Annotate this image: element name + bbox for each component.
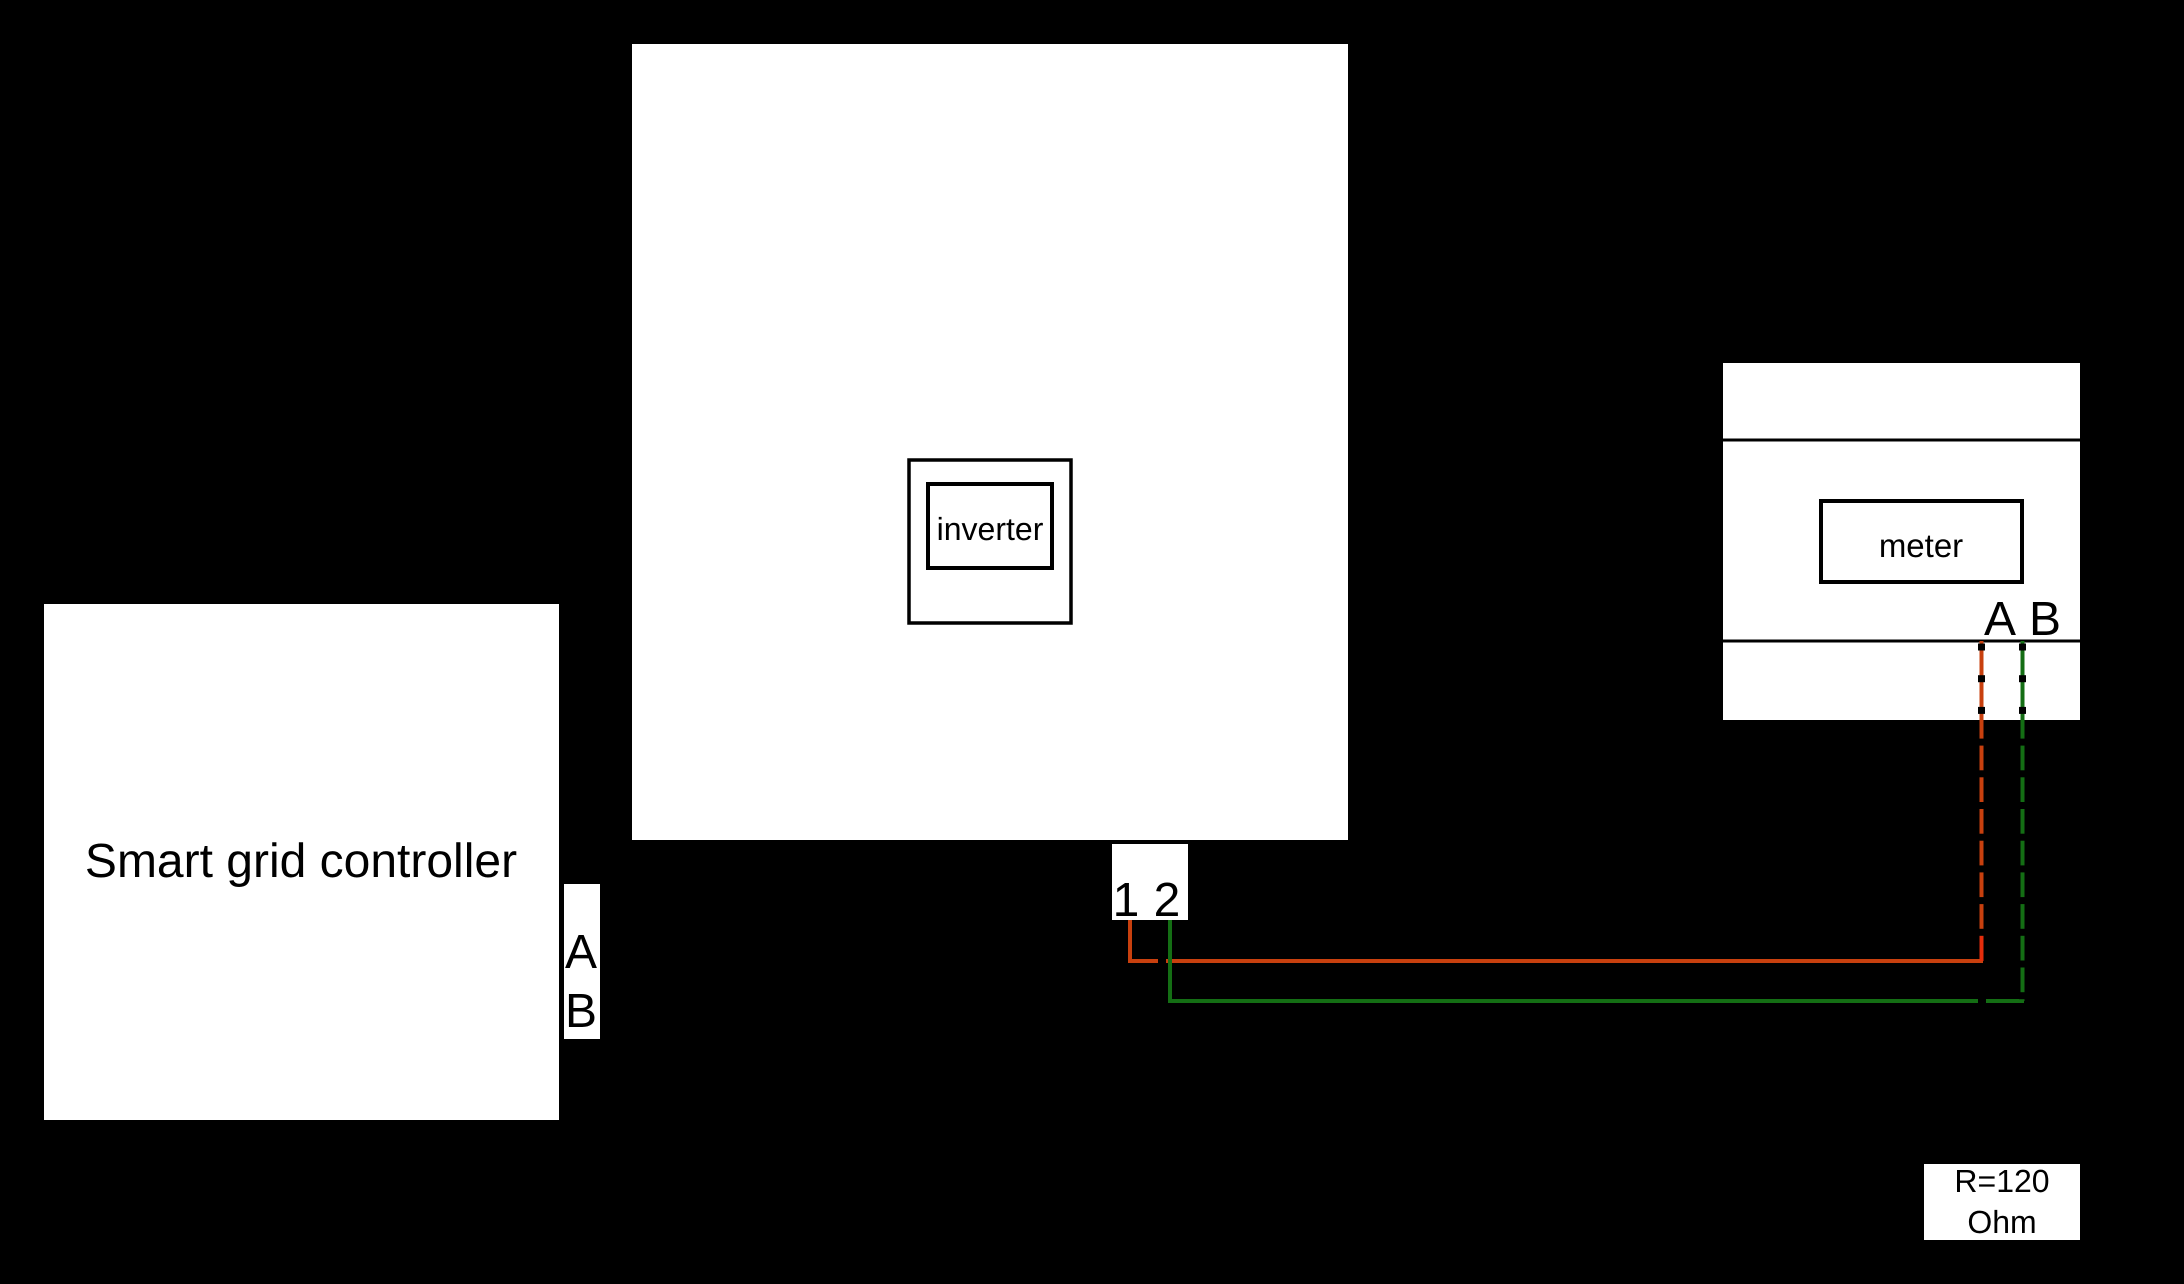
- svg-text:R=120: R=120: [1954, 1163, 2049, 1199]
- svg-text:meter: meter: [1879, 527, 1963, 564]
- svg-text:Ohm: Ohm: [1967, 1204, 2036, 1240]
- svg-text:A: A: [565, 926, 597, 979]
- svg-text:2: 2: [1154, 874, 1181, 927]
- svg-text:Smart grid controller: Smart grid controller: [85, 835, 517, 888]
- svg-text:A: A: [1984, 593, 2016, 646]
- svg-text:B: B: [2029, 593, 2061, 646]
- svg-text:1: 1: [1113, 874, 1140, 927]
- svg-text:inverter: inverter: [937, 511, 1044, 547]
- svg-text:B: B: [565, 985, 597, 1038]
